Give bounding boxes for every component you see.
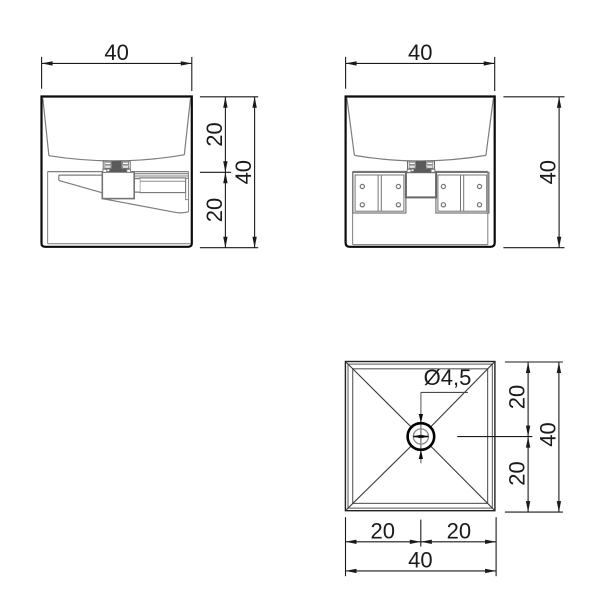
svg-text:20: 20	[447, 518, 471, 543]
svg-text:20: 20	[202, 122, 227, 146]
svg-text:Ø4,5: Ø4,5	[424, 365, 472, 390]
svg-text:40: 40	[408, 547, 432, 572]
svg-text:20: 20	[202, 198, 227, 222]
svg-text:20: 20	[505, 461, 530, 485]
svg-text:40: 40	[104, 40, 128, 65]
svg-text:40: 40	[408, 40, 432, 65]
svg-text:20: 20	[505, 385, 530, 409]
svg-text:40: 40	[231, 160, 256, 184]
svg-text:40: 40	[536, 160, 561, 184]
svg-text:40: 40	[535, 422, 560, 446]
svg-text:20: 20	[371, 518, 395, 543]
